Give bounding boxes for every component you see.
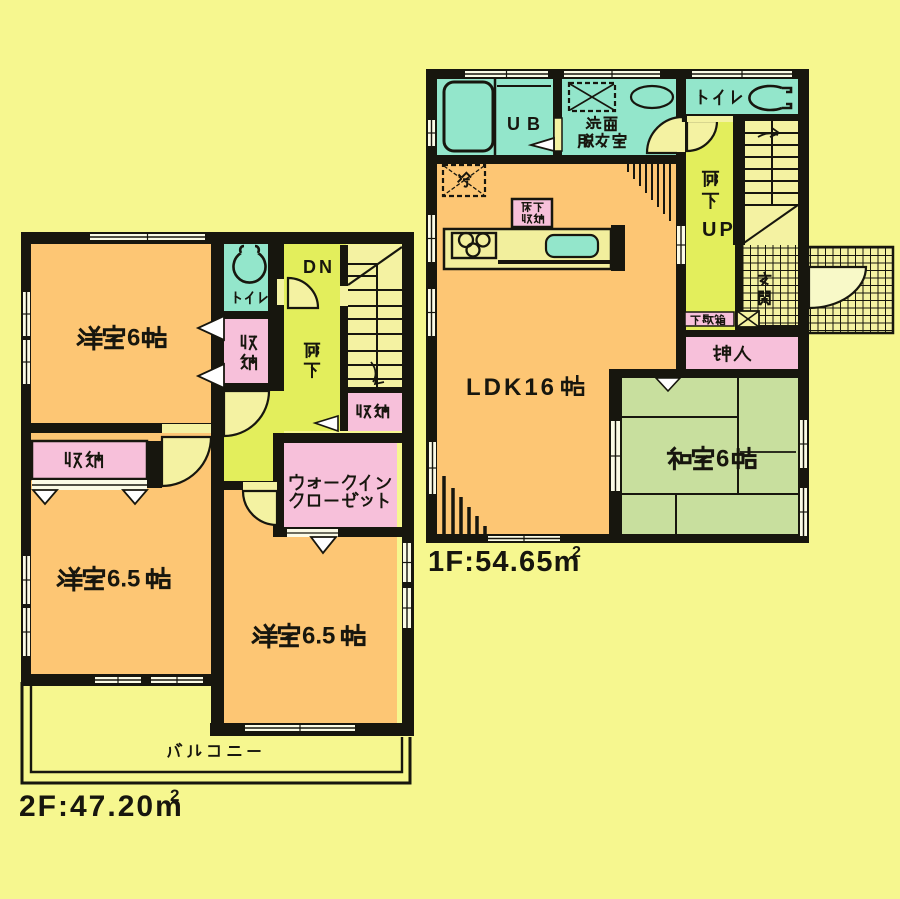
svg-text:UP: UP <box>702 219 736 241</box>
svg-text:1F:54.65m: 1F:54.65m <box>428 546 581 578</box>
svg-text:2: 2 <box>170 786 179 805</box>
svg-text:LDK16: LDK16 <box>466 374 557 401</box>
svg-text:6: 6 <box>127 325 140 352</box>
svg-text:2: 2 <box>572 544 581 561</box>
svg-text:2F:47.20m: 2F:47.20m <box>19 790 184 823</box>
svg-text:6: 6 <box>716 446 729 473</box>
svg-text:DN: DN <box>303 257 335 277</box>
svg-text:6.5: 6.5 <box>107 566 140 593</box>
svg-text:6.5: 6.5 <box>302 623 335 650</box>
svg-text:UB: UB <box>507 114 547 134</box>
